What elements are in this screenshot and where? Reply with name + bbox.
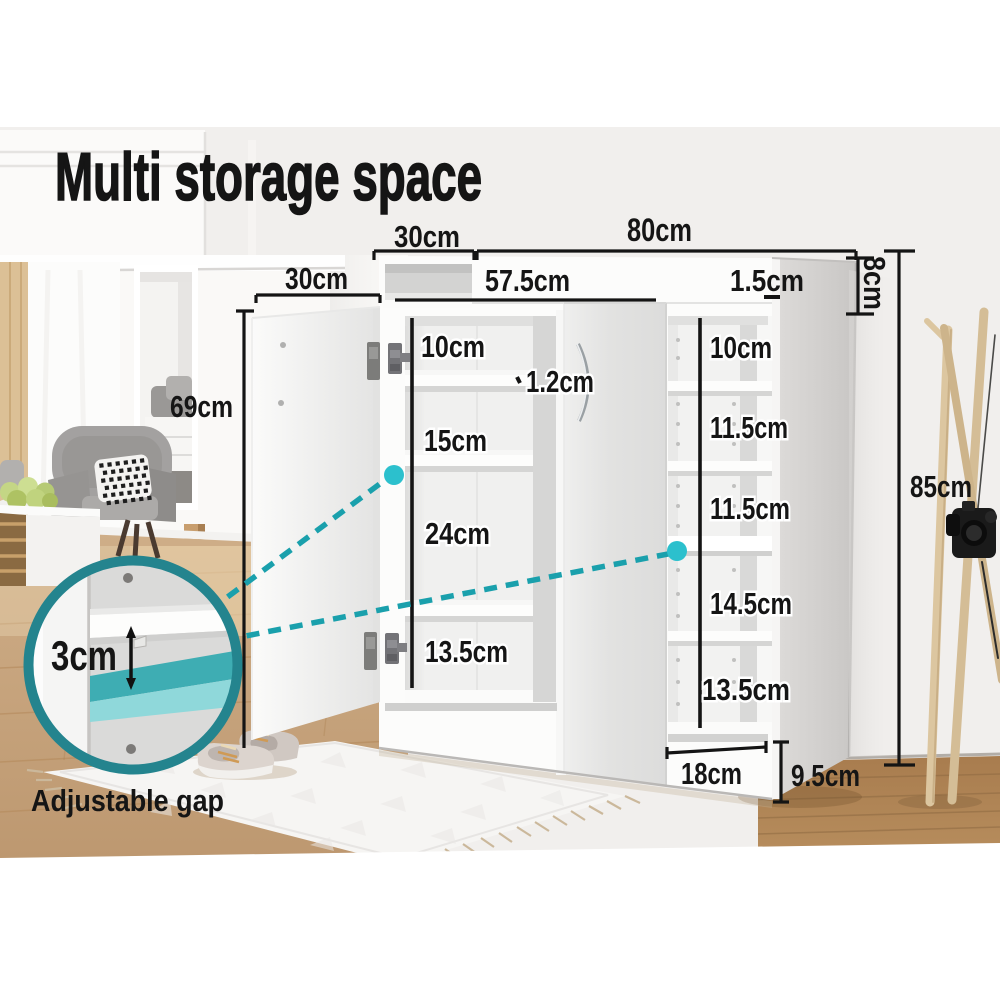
svg-text:10cm: 10cm <box>421 329 485 364</box>
svg-text:9.5cm: 9.5cm <box>791 758 860 793</box>
svg-text:30cm: 30cm <box>285 261 348 296</box>
svg-text:69cm: 69cm <box>170 389 233 424</box>
svg-text:14.5cm: 14.5cm <box>710 586 792 621</box>
svg-text:57.5cm: 57.5cm <box>485 263 570 298</box>
svg-text:3cm: 3cm <box>51 632 117 679</box>
svg-text:8cm: 8cm <box>857 256 892 310</box>
svg-text:15cm: 15cm <box>424 423 487 458</box>
svg-text:80cm: 80cm <box>627 212 692 248</box>
svg-text:11.5cm: 11.5cm <box>710 410 788 445</box>
svg-text:13.5cm: 13.5cm <box>425 634 508 669</box>
svg-text:1.5cm: 1.5cm <box>730 263 804 298</box>
svg-text:1.2cm: 1.2cm <box>526 364 594 399</box>
svg-text:85cm: 85cm <box>910 469 972 504</box>
svg-text:Adjustable gap: Adjustable gap <box>31 783 224 818</box>
svg-text:Multi storage space: Multi storage space <box>55 139 482 215</box>
svg-text:10cm: 10cm <box>710 330 772 365</box>
svg-text:18cm: 18cm <box>681 756 742 791</box>
svg-text:13.5cm: 13.5cm <box>702 672 790 707</box>
svg-text:11.5cm: 11.5cm <box>710 491 790 526</box>
svg-text:30cm: 30cm <box>394 219 460 254</box>
svg-text:24cm: 24cm <box>425 516 490 551</box>
